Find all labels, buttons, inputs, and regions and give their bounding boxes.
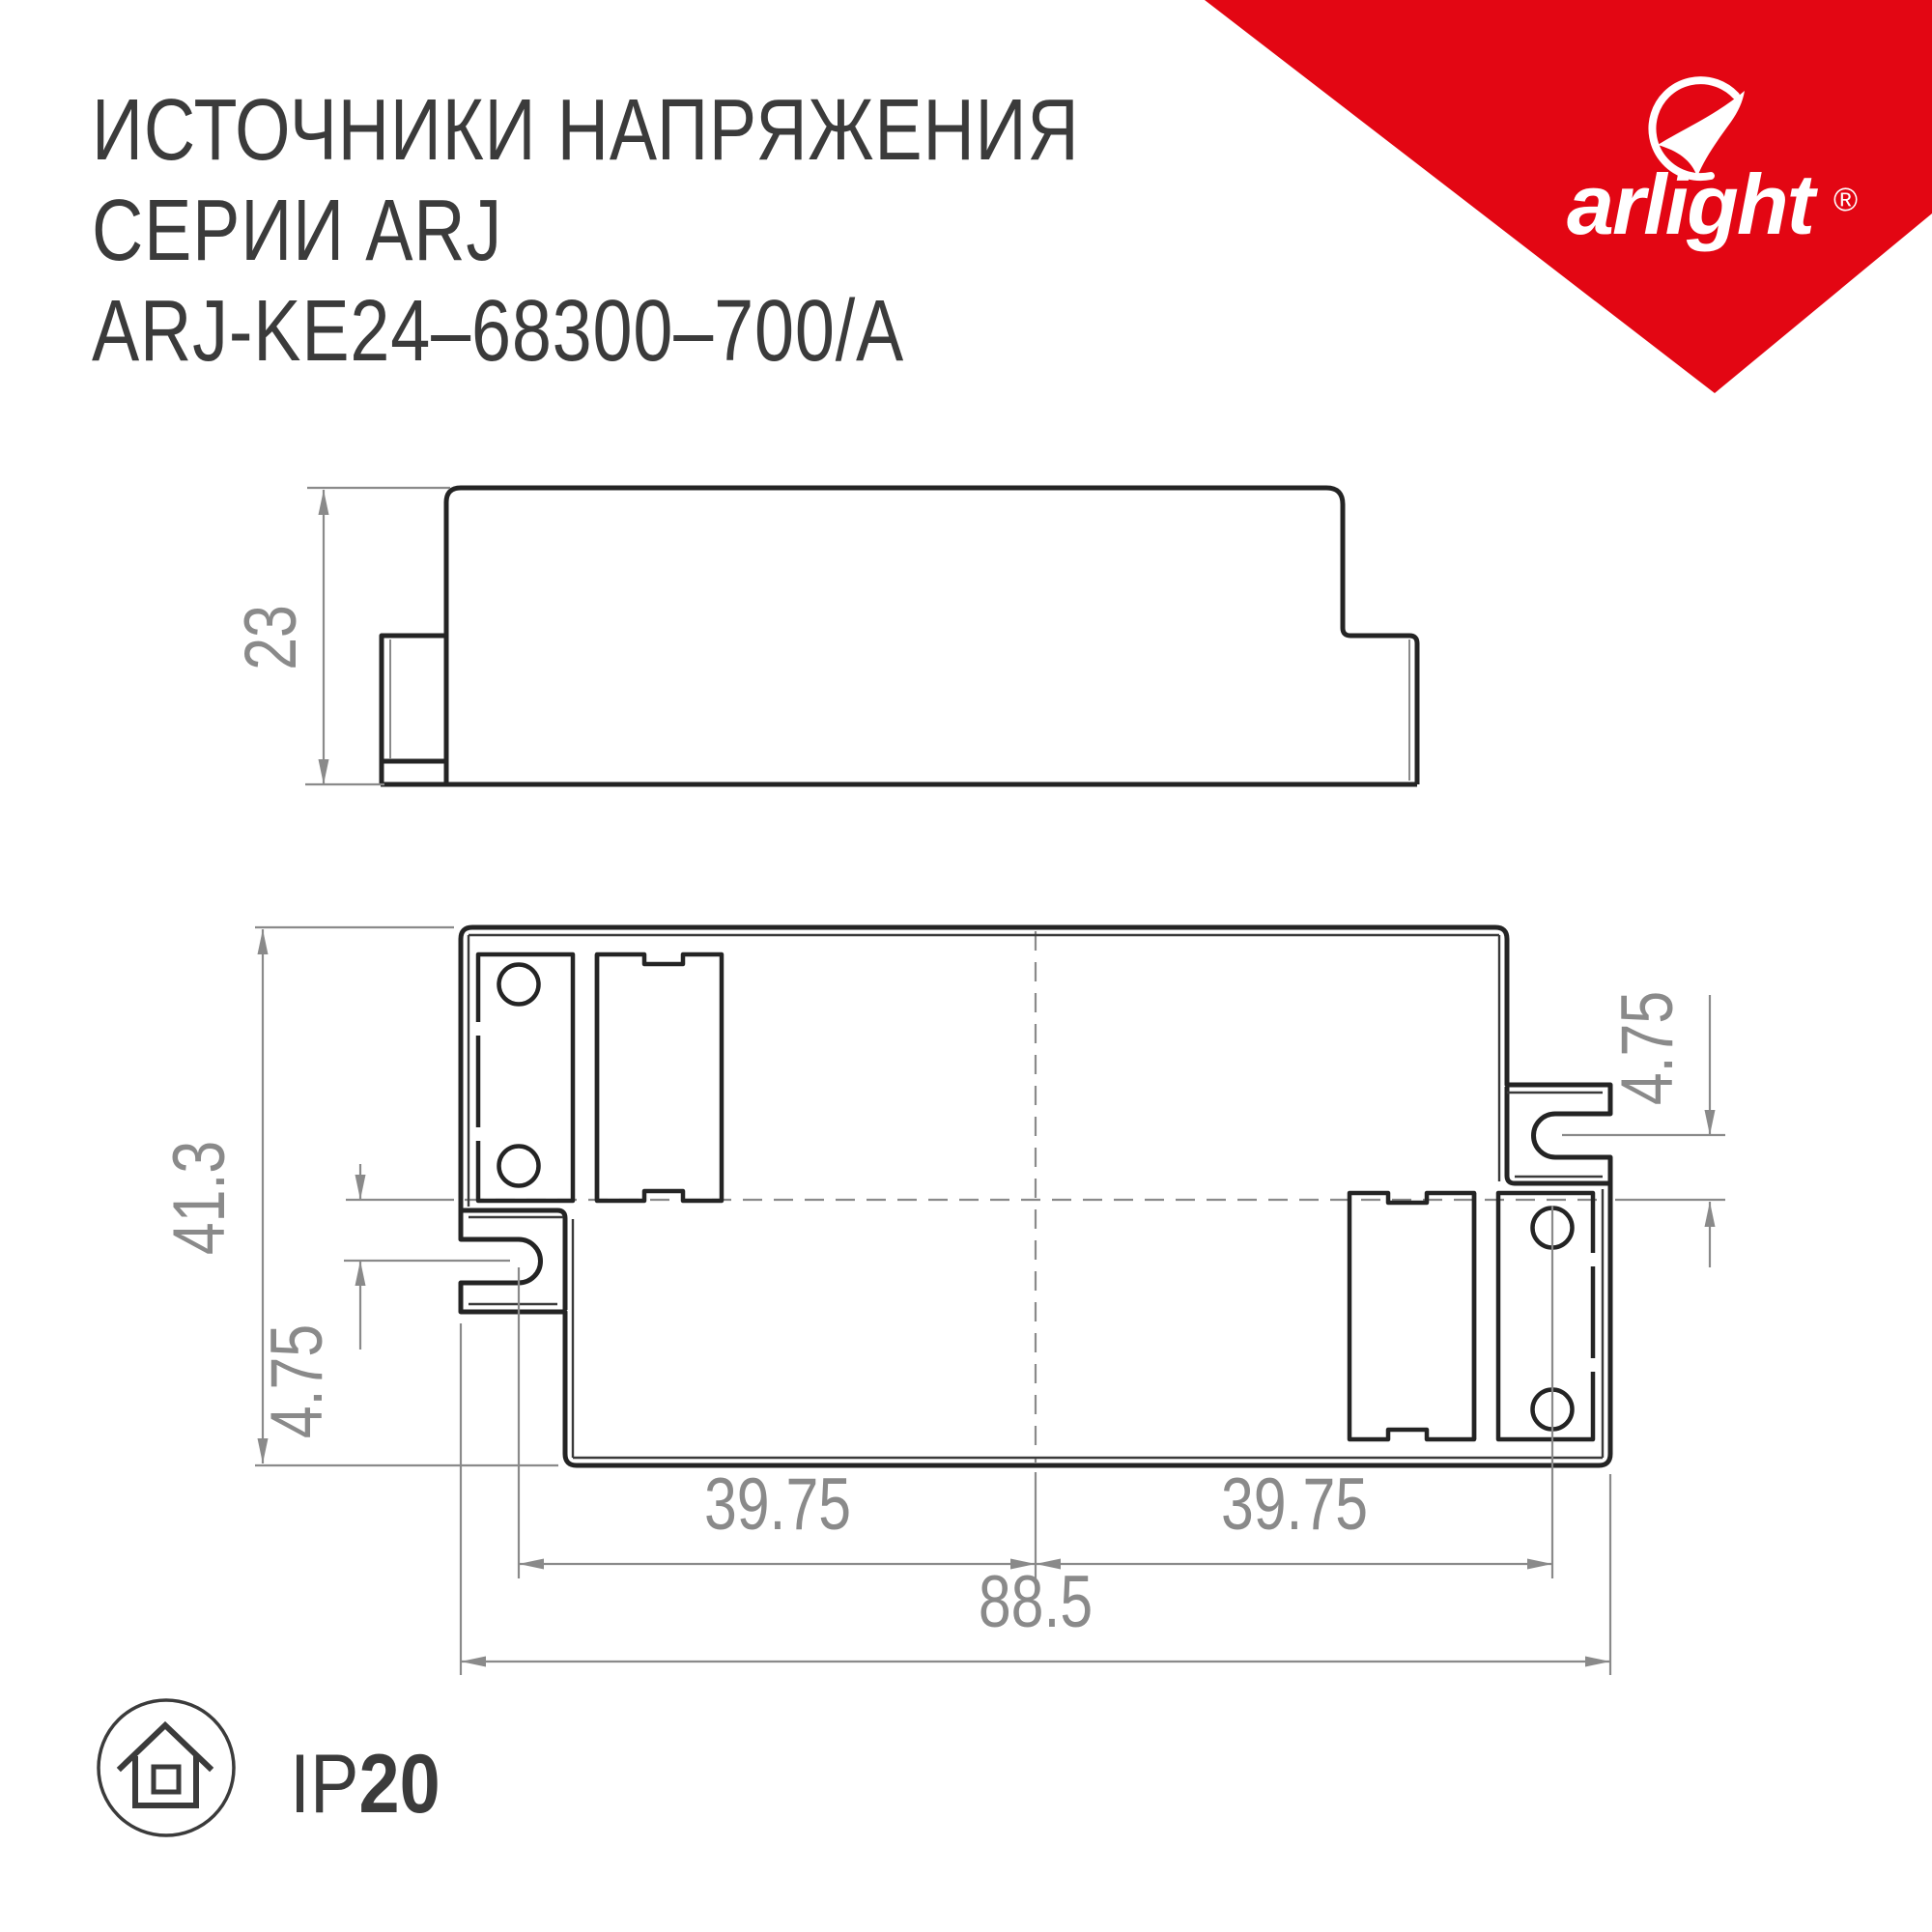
ip-value: 20 [359, 1738, 440, 1831]
registered-mark: ® [1833, 182, 1858, 218]
left-mounting-bracket [478, 954, 722, 1201]
side-view-drawing [381, 488, 1417, 784]
dim-side-height: 23 [230, 605, 312, 670]
right-mounting-bracket [1350, 1193, 1593, 1439]
side-body-outline [446, 488, 1417, 784]
center-lines [465, 931, 1606, 1463]
dim-overall-width: 88.5 [979, 1561, 1093, 1643]
left-bracket-hole-bottom [499, 1147, 539, 1186]
left-bracket-hole-top [499, 965, 539, 1005]
house-icon [121, 1725, 210, 1805]
dim-mount-spacing-right: 39.75 [1221, 1463, 1368, 1546]
brand-triangle: arlight ® [1205, 0, 1932, 393]
logo-text: arlight [1567, 156, 1819, 252]
dim-slot-offset-left: 4.75 [256, 1324, 338, 1438]
dim-mount-spacing-left: 39.75 [704, 1463, 851, 1546]
right-bracket-plate [1498, 1193, 1593, 1439]
ip-rating: IP20 [290, 1737, 440, 1833]
page-root: ИСТОЧНИКИ НАПРЯЖЕНИЯ СЕРИИ ARJ ARJ-KE24–… [0, 0, 1932, 1932]
left-bracket-plate [478, 954, 573, 1201]
right-bracket-clip [1350, 1193, 1474, 1439]
technical-drawing: arlight ® 23 [0, 0, 1932, 1932]
dim-overall-height: 41.3 [158, 1141, 241, 1255]
ip-badge-icon [99, 1700, 234, 1835]
ip-prefix: IP [290, 1738, 359, 1831]
dim-slot-offset-right: 4.75 [1606, 991, 1689, 1105]
left-bracket-clip [597, 954, 722, 1201]
